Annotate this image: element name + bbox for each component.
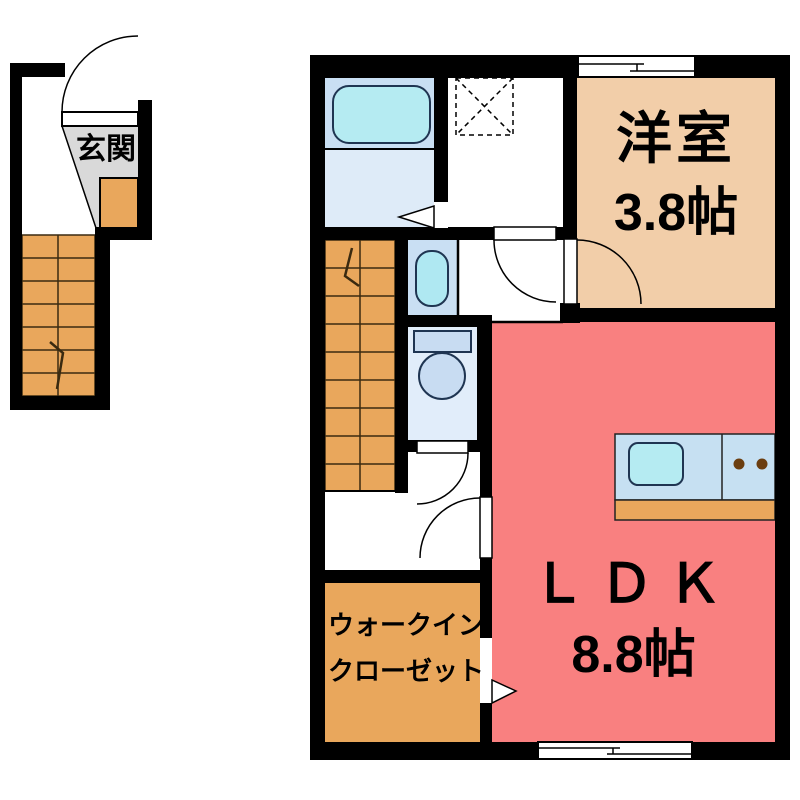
staircase-1f [22, 235, 95, 396]
walk-in-closet-label: ウォークイン [328, 612, 480, 639]
stove-burner-icon [757, 459, 768, 470]
window-bottom [538, 742, 692, 759]
window-top [578, 56, 695, 77]
staircase-2f [325, 240, 395, 491]
walk-in-closet-label2: クローゼット [328, 658, 480, 685]
ldk-label: ＬＤＫ [492, 556, 775, 613]
washbasin-icon [416, 251, 448, 306]
entrance-block [10, 36, 152, 410]
kitchen-sink-icon [629, 443, 683, 485]
stove-burner-icon [734, 459, 745, 470]
entrance-step [100, 178, 138, 228]
door-leaf [480, 497, 492, 558]
door-leaf [494, 227, 556, 240]
door-leaf [564, 239, 577, 304]
western-room-label: 洋室 [577, 110, 775, 169]
ldk-size: 8.8帖 [492, 628, 775, 683]
kitchen-counter-base [615, 500, 775, 520]
floor-plan: 玄関 洋室 3.8帖 ＬＤＫ 8.8帖 ウォークイン クローゼット [0, 0, 800, 800]
western-room-size: 3.8帖 [577, 186, 775, 241]
bathtub-icon [333, 86, 430, 143]
door-leaf [417, 441, 468, 453]
entrance-label: 玄関 [66, 134, 146, 166]
kitchen-counter [615, 434, 775, 520]
front-door-leaf [62, 112, 138, 126]
